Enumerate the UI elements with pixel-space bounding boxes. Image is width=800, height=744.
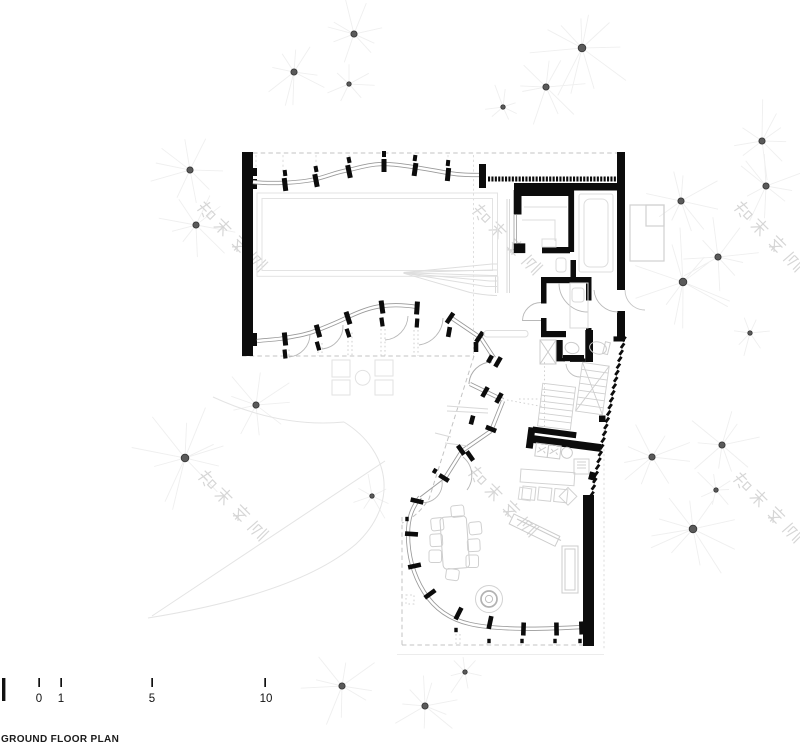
svg-text:GROUND FLOOR PLAN: GROUND FLOOR PLAN (1, 734, 119, 744)
svg-text:10: 10 (260, 693, 273, 705)
svg-text:0: 0 (36, 693, 42, 705)
svg-text:1: 1 (58, 693, 64, 705)
svg-text:5: 5 (149, 693, 155, 705)
